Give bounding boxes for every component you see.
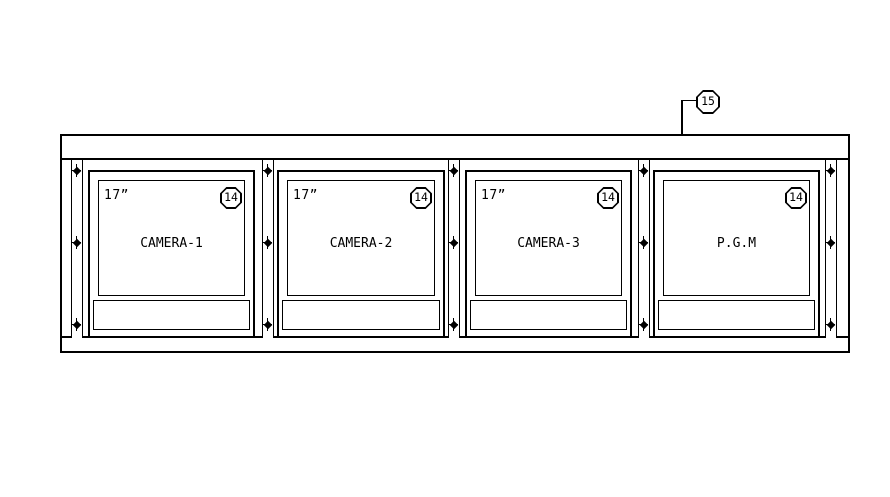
screw-marker-icon [70,164,83,177]
monitor-panel-camera-3: 17” 14 CAMERA-3 [465,170,632,338]
monitor-panel-pgm: 14 P.G.M [653,170,820,338]
mounting-rail-between-2-3 [448,160,460,338]
monitor-size-label: 17” [104,188,129,203]
monitor-screen: 14 P.G.M [663,180,810,296]
callout-14-number: 14 [224,192,238,204]
callout-15-leader-vertical [681,100,683,136]
monitor-control-panel [282,300,440,330]
monitor-panel-camera-1: 17” 14 CAMERA-1 [88,170,255,338]
screw-marker-icon [824,236,837,249]
callout-balloon-14: 14 [597,187,619,209]
monitor-screen: 17” 14 CAMERA-3 [475,180,622,296]
callout-15-leader-horizontal [682,100,697,102]
monitor-screen: 17” 14 CAMERA-1 [98,180,245,296]
monitor-label: CAMERA-1 [140,236,203,251]
screw-marker-icon [70,236,83,249]
callout-balloon-15: 15 [696,90,720,114]
monitor-rack-elevation-drawing: 15 17” 14 CAMERA-1 [0,0,890,497]
screw-marker-icon [637,164,650,177]
monitor-control-panel [658,300,815,330]
screw-marker-icon [447,318,460,331]
screw-marker-icon [824,164,837,177]
callout-14-number: 14 [414,192,428,204]
monitor-control-panel [470,300,627,330]
screw-marker-icon [261,164,274,177]
mounting-rail-right [825,160,837,338]
screw-marker-icon [261,236,274,249]
mounting-rail-left [71,160,83,338]
callout-14-number: 14 [601,192,615,204]
monitor-size-label: 17” [293,188,318,203]
mounting-rail-between-1-2 [262,160,274,338]
monitor-label: CAMERA-3 [517,236,580,251]
screw-marker-icon [70,318,83,331]
mounting-rail-between-3-4 [638,160,650,338]
callout-balloon-14: 14 [220,187,242,209]
monitor-control-panel [93,300,250,330]
monitor-panel-camera-2: 17” 14 CAMERA-2 [277,170,445,338]
screw-marker-icon [447,236,460,249]
monitor-size-label: 17” [481,188,506,203]
callout-14-number: 14 [789,192,803,204]
monitor-label: P.G.M [717,236,756,251]
screw-marker-icon [824,318,837,331]
screw-marker-icon [447,164,460,177]
callout-balloon-14: 14 [410,187,432,209]
callout-balloon-14: 14 [785,187,807,209]
screw-marker-icon [637,318,650,331]
monitor-screen: 17” 14 CAMERA-2 [287,180,435,296]
screw-marker-icon [637,236,650,249]
monitor-label: CAMERA-2 [330,236,393,251]
screw-marker-icon [261,318,274,331]
callout-15-number: 15 [701,96,715,108]
